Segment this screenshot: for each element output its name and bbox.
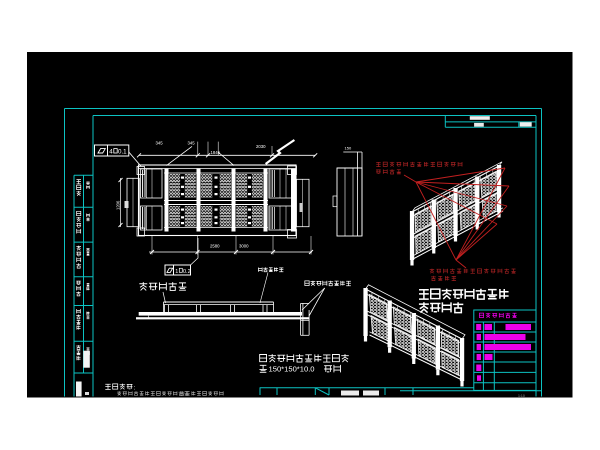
svg-text:1:10: 1:10 bbox=[518, 394, 525, 398]
svg-text:4: 4 bbox=[109, 149, 113, 156]
svg-text:345: 345 bbox=[156, 141, 164, 146]
svg-text:0.2: 0.2 bbox=[183, 269, 191, 275]
svg-text:1206: 1206 bbox=[116, 200, 121, 210]
svg-text:2030: 2030 bbox=[256, 144, 266, 149]
svg-text:345: 345 bbox=[188, 141, 196, 146]
svg-text:150*150*10.0: 150*150*10.0 bbox=[269, 365, 315, 374]
svg-text:150: 150 bbox=[345, 146, 352, 151]
svg-text:0.1: 0.1 bbox=[118, 149, 127, 156]
svg-text:1: 1 bbox=[175, 269, 178, 275]
svg-text:2580: 2580 bbox=[210, 244, 220, 249]
svg-text:3000: 3000 bbox=[239, 244, 249, 249]
